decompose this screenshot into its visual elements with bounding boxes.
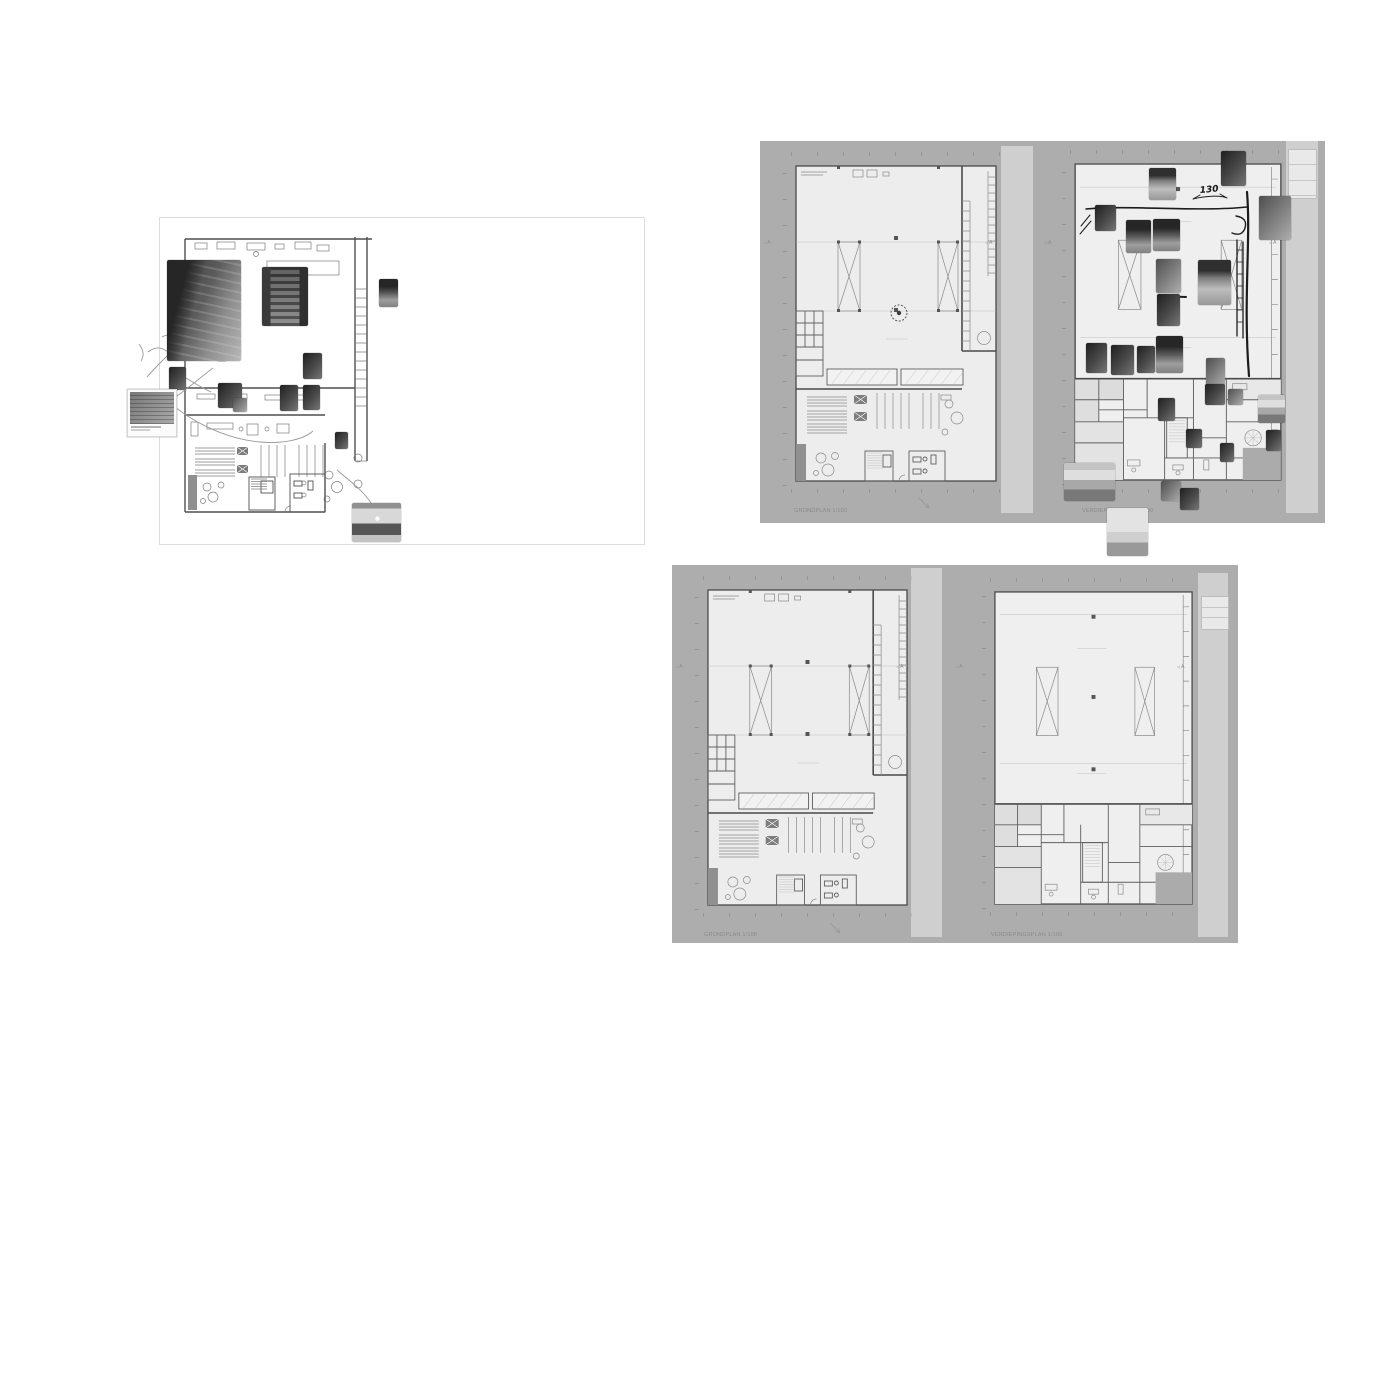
photo-detail-d[interactable] bbox=[1158, 398, 1175, 421]
photo-rack-close[interactable] bbox=[1157, 294, 1180, 326]
photo-detail-c[interactable] bbox=[1228, 389, 1243, 405]
photo-dark-corner[interactable] bbox=[1221, 151, 1246, 186]
photo-detail-a[interactable] bbox=[1206, 358, 1225, 386]
photo-layer bbox=[0, 0, 1396, 1396]
photo-store-shelves[interactable] bbox=[1156, 336, 1183, 373]
canvas: GRONDPLAN 1/100 VERDIEPINGSPLAN 1/100 GR… bbox=[0, 0, 1396, 1396]
photo-small-bottom-b[interactable] bbox=[1180, 488, 1199, 510]
photo-empty-room[interactable] bbox=[1107, 508, 1148, 556]
photo-office-interior[interactable] bbox=[1064, 463, 1115, 501]
photo-rack-row-c[interactable] bbox=[1137, 346, 1155, 373]
photo-ceiling-hall[interactable] bbox=[1149, 168, 1176, 200]
photo-machine-room[interactable] bbox=[1259, 196, 1291, 240]
photo-detail-e[interactable] bbox=[1186, 429, 1202, 448]
photo-aisle-a[interactable] bbox=[1126, 220, 1151, 253]
photo-aisle-b[interactable] bbox=[1153, 219, 1180, 251]
photo-hall-wide[interactable] bbox=[1198, 260, 1231, 305]
photo-detail-b[interactable] bbox=[1205, 384, 1225, 405]
photo-rack-left[interactable] bbox=[1095, 205, 1116, 231]
photo-rack-row-b[interactable] bbox=[1111, 345, 1134, 375]
photo-rack-row-a[interactable] bbox=[1086, 343, 1107, 373]
photo-office-corner[interactable] bbox=[1258, 395, 1285, 423]
photo-detail-f[interactable] bbox=[1266, 430, 1281, 451]
photo-detail-g[interactable] bbox=[1220, 443, 1234, 462]
photo-shelving-mid[interactable] bbox=[1156, 259, 1181, 293]
photo-small-bottom-a[interactable] bbox=[1161, 481, 1181, 501]
